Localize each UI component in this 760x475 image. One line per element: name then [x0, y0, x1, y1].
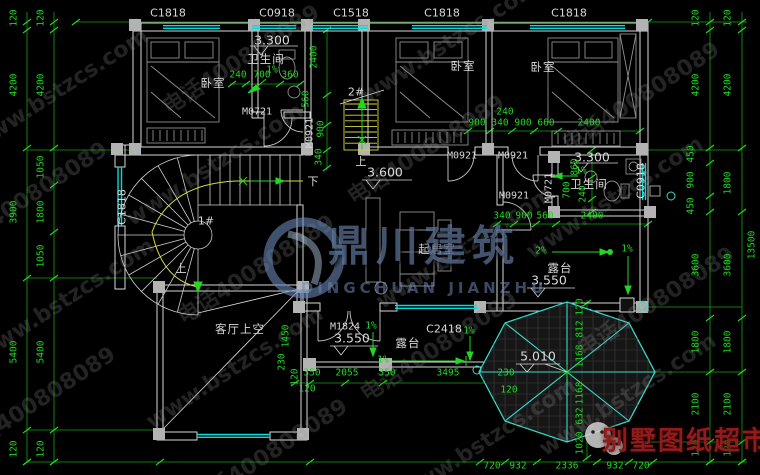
dim-label: 720	[632, 461, 649, 472]
dim-label: 812	[575, 320, 586, 337]
slope-label: 1%	[621, 244, 632, 255]
level-mark: 3.550	[334, 331, 370, 346]
slope-label: 2%	[535, 246, 546, 257]
level-mark: 3.600	[367, 165, 403, 180]
door-label: M0721	[242, 107, 272, 118]
dim-label: 560	[536, 211, 553, 222]
window-label: C0918	[635, 163, 648, 199]
dim-label: 700	[253, 70, 270, 81]
stair-up-label: 上	[176, 260, 187, 276]
dim-label: 932	[509, 461, 526, 472]
dim-label: 3900	[9, 201, 20, 224]
dim-label: 120	[723, 9, 734, 26]
window-label: C2418	[426, 323, 462, 336]
dim-label: 900	[514, 118, 531, 129]
dim-label: 860	[570, 158, 581, 175]
door-label: M0921	[499, 191, 529, 202]
dim-label: 3600	[691, 254, 702, 277]
level-mark: 3.300	[254, 33, 290, 48]
dim-label: 700	[562, 181, 573, 198]
dim-label: 230	[497, 368, 514, 379]
dim-label: 3600	[723, 254, 734, 277]
window-label: C1818	[150, 7, 186, 20]
dim-label: 560	[301, 90, 312, 107]
dim-label: 2400	[578, 118, 601, 129]
dim-label: 1800	[723, 172, 734, 195]
slope-label: 1%	[377, 355, 388, 366]
dim-label: 120	[36, 9, 47, 26]
room-label-void: 客厅上空	[215, 321, 265, 337]
dim-label: 350	[303, 368, 320, 379]
dim-label: 2055	[336, 368, 359, 379]
dim-label: 900	[468, 118, 485, 129]
stair-up-label: 上	[356, 153, 367, 169]
dim-label: 120	[575, 298, 586, 315]
dim-label: 240	[229, 70, 246, 81]
dim-label: 720	[483, 461, 500, 472]
dim-label: 2400	[581, 211, 604, 222]
dim-label: 900	[316, 120, 327, 137]
stair-down-label: 下	[308, 173, 319, 189]
dim-label: 350	[378, 368, 395, 379]
dim-label: 3495	[437, 368, 460, 379]
dim-label: 2100	[691, 393, 702, 416]
dim-label: 340	[491, 118, 508, 129]
dim-label: 450	[686, 145, 697, 162]
door-label: M0921	[498, 151, 528, 162]
window-label: C1518	[333, 7, 369, 20]
dim-label: 4200	[723, 74, 734, 97]
dim-label: 1450	[281, 325, 292, 348]
dim-label: 5400	[36, 341, 47, 364]
level-mark: 5.010	[520, 349, 556, 364]
logo-text-en: DINGCHUAN JIANZHU	[301, 279, 548, 297]
dim-label: 4200	[691, 74, 702, 97]
dim-label: 2336	[556, 461, 579, 472]
dim-label: 900	[686, 171, 697, 188]
dim-label: 120	[500, 385, 517, 396]
stair-label: 2#	[348, 86, 364, 99]
brand-name: 别墅图纸超市	[602, 421, 760, 458]
dim-label: 1800	[36, 201, 47, 224]
cad-floorplan-canvas: C1818 C0918 C1518 C1818 C1818 C1818 C091…	[0, 0, 760, 475]
dim-label: 1168	[575, 345, 586, 368]
logo-text-cn: 鼎川建筑	[328, 213, 520, 274]
dim-label-total: 13500	[747, 231, 758, 260]
room-label-bedroom: 卧室	[531, 59, 556, 75]
dim-label: 1800	[723, 331, 734, 354]
dim-label: 450	[686, 197, 697, 214]
slope-label: 1%	[365, 321, 376, 332]
door-label: M0921	[447, 151, 477, 162]
dim-label: 360	[281, 70, 298, 81]
window-label: C1818	[116, 189, 129, 225]
dim-label: 120	[298, 384, 315, 395]
room-label-bathroom: 卫生间	[570, 176, 608, 192]
dim-label: 120	[36, 440, 47, 457]
dim-label: 120	[9, 9, 20, 26]
dim-label: 240	[496, 107, 513, 118]
window-label: C1818	[551, 7, 587, 20]
stair-label: 1#	[198, 215, 214, 228]
window-label: C1818	[424, 7, 460, 20]
door-label: M0721	[544, 173, 555, 203]
dim-label: 120	[9, 440, 20, 457]
dim-label: 4200	[9, 74, 20, 97]
room-label-bedroom: 卧室	[201, 75, 226, 91]
dim-label: 120	[691, 9, 702, 26]
room-label-bedroom: 卧室	[451, 58, 476, 74]
dim-label: 1050	[36, 245, 47, 268]
dim-label: 240	[578, 185, 589, 202]
slope-label: 1%	[463, 326, 474, 337]
room-label-terrace: 露台	[396, 335, 421, 351]
dim-label: 660	[537, 118, 554, 129]
window-label: C0918	[259, 7, 295, 20]
dim-label: 2100	[723, 393, 734, 416]
dim-label: 932	[606, 461, 623, 472]
dim-label: 1168	[575, 382, 586, 405]
door-label: M0921	[305, 118, 316, 148]
dim-label: 340	[314, 148, 325, 165]
dim-label: 1800	[691, 331, 702, 354]
dim-label: 1050	[36, 156, 47, 179]
dim-label: 4200	[36, 74, 47, 97]
dim-label: 2400	[309, 46, 320, 69]
dim-label: 230	[277, 353, 288, 370]
dim-label: 5400	[9, 341, 20, 364]
